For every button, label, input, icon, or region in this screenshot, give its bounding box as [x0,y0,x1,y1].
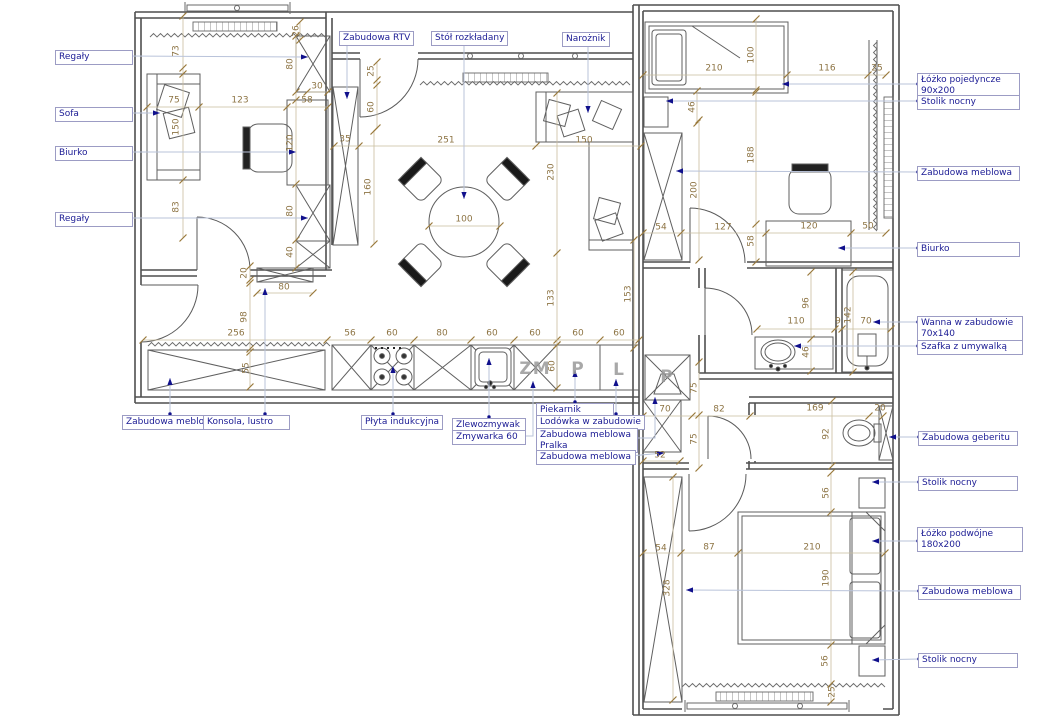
leader-zabudowa-meblowa-3 [167,378,172,416]
leader-plyta-indukcyjna [390,366,395,416]
floor-plan: 7326803058751231501203525601602511502301… [0,0,1057,724]
leader-stolik-nocny-2 [872,479,921,484]
leader-zabudowa-meblowa-pralka [629,397,657,440]
leader-piekarnik [572,370,577,404]
leader-szafka-z-umywalka [794,343,920,348]
dimension-chains [140,13,895,706]
annotations-layer [0,0,1057,724]
leader-zabudowa-meblowa-1 [676,168,920,173]
leader-wanna-w-zabudowie [873,319,920,324]
leader-sofa [124,110,160,115]
leader-biurko-2 [838,245,920,250]
leader-konsola-lustro [262,288,267,416]
leader-lozko-pojedyncze [782,81,920,86]
leader-lozko-podwojne [872,538,920,543]
leader-stolik-nocny-3 [872,657,921,662]
leader-biurko-1 [124,149,296,154]
leader-zabudowa-meblowa-4 [627,451,664,458]
leader-lodowka-w-zabudowie [613,379,618,416]
leader-stolik-nocny-1 [666,98,920,103]
leader-regaly-1 [124,54,308,59]
leader-zabudowa-geberitu [889,434,921,439]
leader-zabudowa-meblowa-2 [686,587,921,592]
leader-zabudowa-rtv [344,42,349,99]
leader-zmywarka-60 [516,381,535,438]
leader-regaly-2 [124,215,308,220]
leader-zlewozmywak [486,358,491,419]
leader-stol-rozkladany [461,42,466,199]
leader-naroznik [585,43,590,113]
